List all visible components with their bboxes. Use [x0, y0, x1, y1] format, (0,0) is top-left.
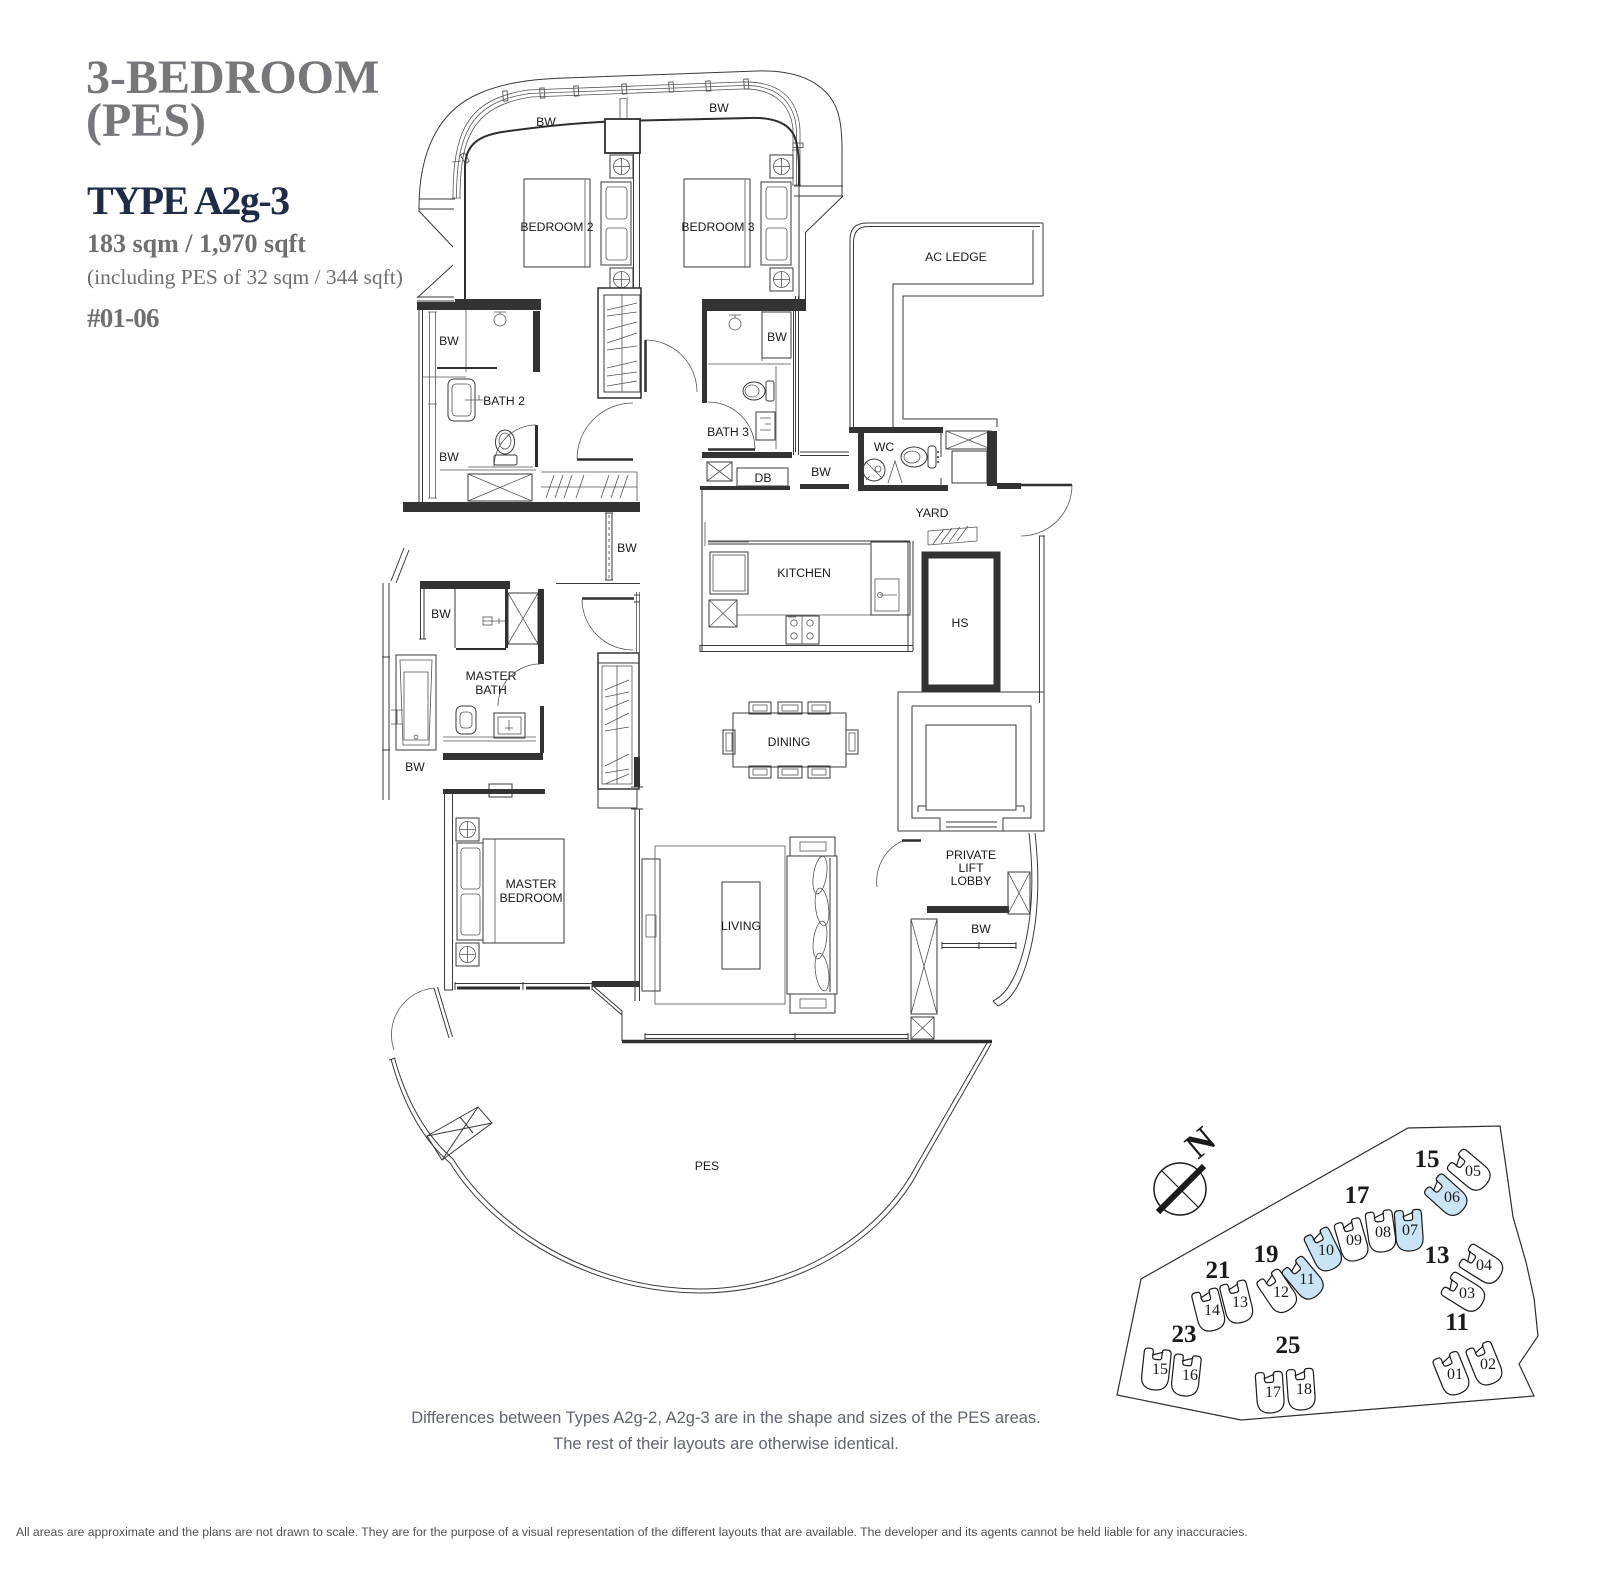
svg-text:01: 01 — [1447, 1366, 1463, 1383]
svg-text:19: 19 — [1254, 1241, 1279, 1268]
svg-text:HS: HS — [952, 616, 969, 630]
svg-text:YARD: YARD — [916, 506, 949, 520]
svg-text:14: 14 — [1204, 1302, 1220, 1319]
svg-text:10: 10 — [1318, 1242, 1334, 1259]
svg-text:PES: PES — [695, 1159, 719, 1173]
svg-text:BATH 2: BATH 2 — [483, 394, 525, 408]
svg-text:#01-06: #01-06 — [87, 303, 159, 333]
svg-text:03: 03 — [1459, 1285, 1475, 1302]
svg-text:TYPE A2g-3: TYPE A2g-3 — [87, 178, 289, 223]
svg-text:06: 06 — [1444, 1189, 1460, 1206]
svg-text:BW: BW — [617, 541, 637, 555]
svg-text:08: 08 — [1375, 1224, 1391, 1241]
svg-text:17: 17 — [1265, 1384, 1281, 1401]
svg-text:BW: BW — [709, 101, 729, 115]
svg-text:21: 21 — [1206, 1257, 1231, 1284]
svg-text:13: 13 — [1232, 1294, 1248, 1311]
svg-text:BW: BW — [439, 334, 459, 348]
svg-text:Differences between Types A2g-: Differences between Types A2g-2, A2g-3 a… — [411, 1409, 1041, 1427]
svg-text:02: 02 — [1480, 1356, 1496, 1373]
svg-text:LOBBY: LOBBY — [951, 874, 992, 888]
svg-text:11: 11 — [1445, 1309, 1469, 1336]
svg-text:All areas are approximate and: All areas are approximate and the plans … — [16, 1525, 1248, 1539]
svg-text:KITCHEN: KITCHEN — [777, 566, 831, 580]
svg-text:BW: BW — [811, 465, 831, 479]
svg-text:15: 15 — [1415, 1146, 1440, 1173]
svg-text:MASTER: MASTER — [506, 877, 557, 891]
svg-text:LIVING: LIVING — [721, 919, 761, 933]
svg-text:MASTER: MASTER — [466, 669, 517, 683]
svg-text:DB: DB — [755, 471, 772, 485]
svg-text:07: 07 — [1402, 1222, 1418, 1239]
svg-text:25: 25 — [1276, 1332, 1301, 1359]
svg-text:23: 23 — [1172, 1321, 1197, 1348]
svg-text:05: 05 — [1465, 1163, 1481, 1180]
svg-text:(including PES of 32 sqm / 344: (including PES of 32 sqm / 344 sqft) — [87, 265, 403, 289]
svg-text:11: 11 — [1299, 1271, 1314, 1288]
svg-text:16: 16 — [1182, 1367, 1198, 1384]
svg-text:18: 18 — [1296, 1381, 1312, 1398]
svg-text:N: N — [1177, 1119, 1223, 1166]
svg-text:DINING: DINING — [768, 735, 811, 749]
svg-text:BATH: BATH — [475, 683, 507, 697]
svg-text:PRIVATE: PRIVATE — [946, 848, 996, 862]
svg-text:04: 04 — [1476, 1257, 1492, 1274]
svg-text:WC: WC — [874, 440, 895, 454]
svg-text:13: 13 — [1425, 1242, 1450, 1269]
svg-text:BW: BW — [767, 330, 787, 344]
svg-text:AC LEDGE: AC LEDGE — [925, 250, 987, 264]
svg-text:BW: BW — [971, 922, 991, 936]
svg-text:BEDROOM 3: BEDROOM 3 — [681, 220, 754, 234]
svg-text:17: 17 — [1345, 1182, 1370, 1209]
svg-text:12: 12 — [1273, 1284, 1289, 1301]
svg-text:LIFT: LIFT — [958, 861, 984, 875]
svg-text:(PES): (PES) — [86, 94, 206, 147]
svg-text:15: 15 — [1152, 1361, 1168, 1378]
svg-text:183 sqm / 1,970 sqft: 183 sqm / 1,970 sqft — [87, 229, 306, 258]
svg-text:BW: BW — [405, 760, 425, 774]
svg-text:BW: BW — [431, 607, 451, 621]
svg-text:The rest of their layouts are: The rest of their layouts are otherwise … — [553, 1435, 899, 1453]
svg-text:BEDROOM: BEDROOM — [500, 891, 563, 905]
svg-text:BATH 3: BATH 3 — [707, 425, 749, 439]
svg-text:09: 09 — [1346, 1232, 1362, 1249]
svg-text:BW: BW — [439, 450, 459, 464]
svg-text:BEDROOM 2: BEDROOM 2 — [520, 220, 593, 234]
